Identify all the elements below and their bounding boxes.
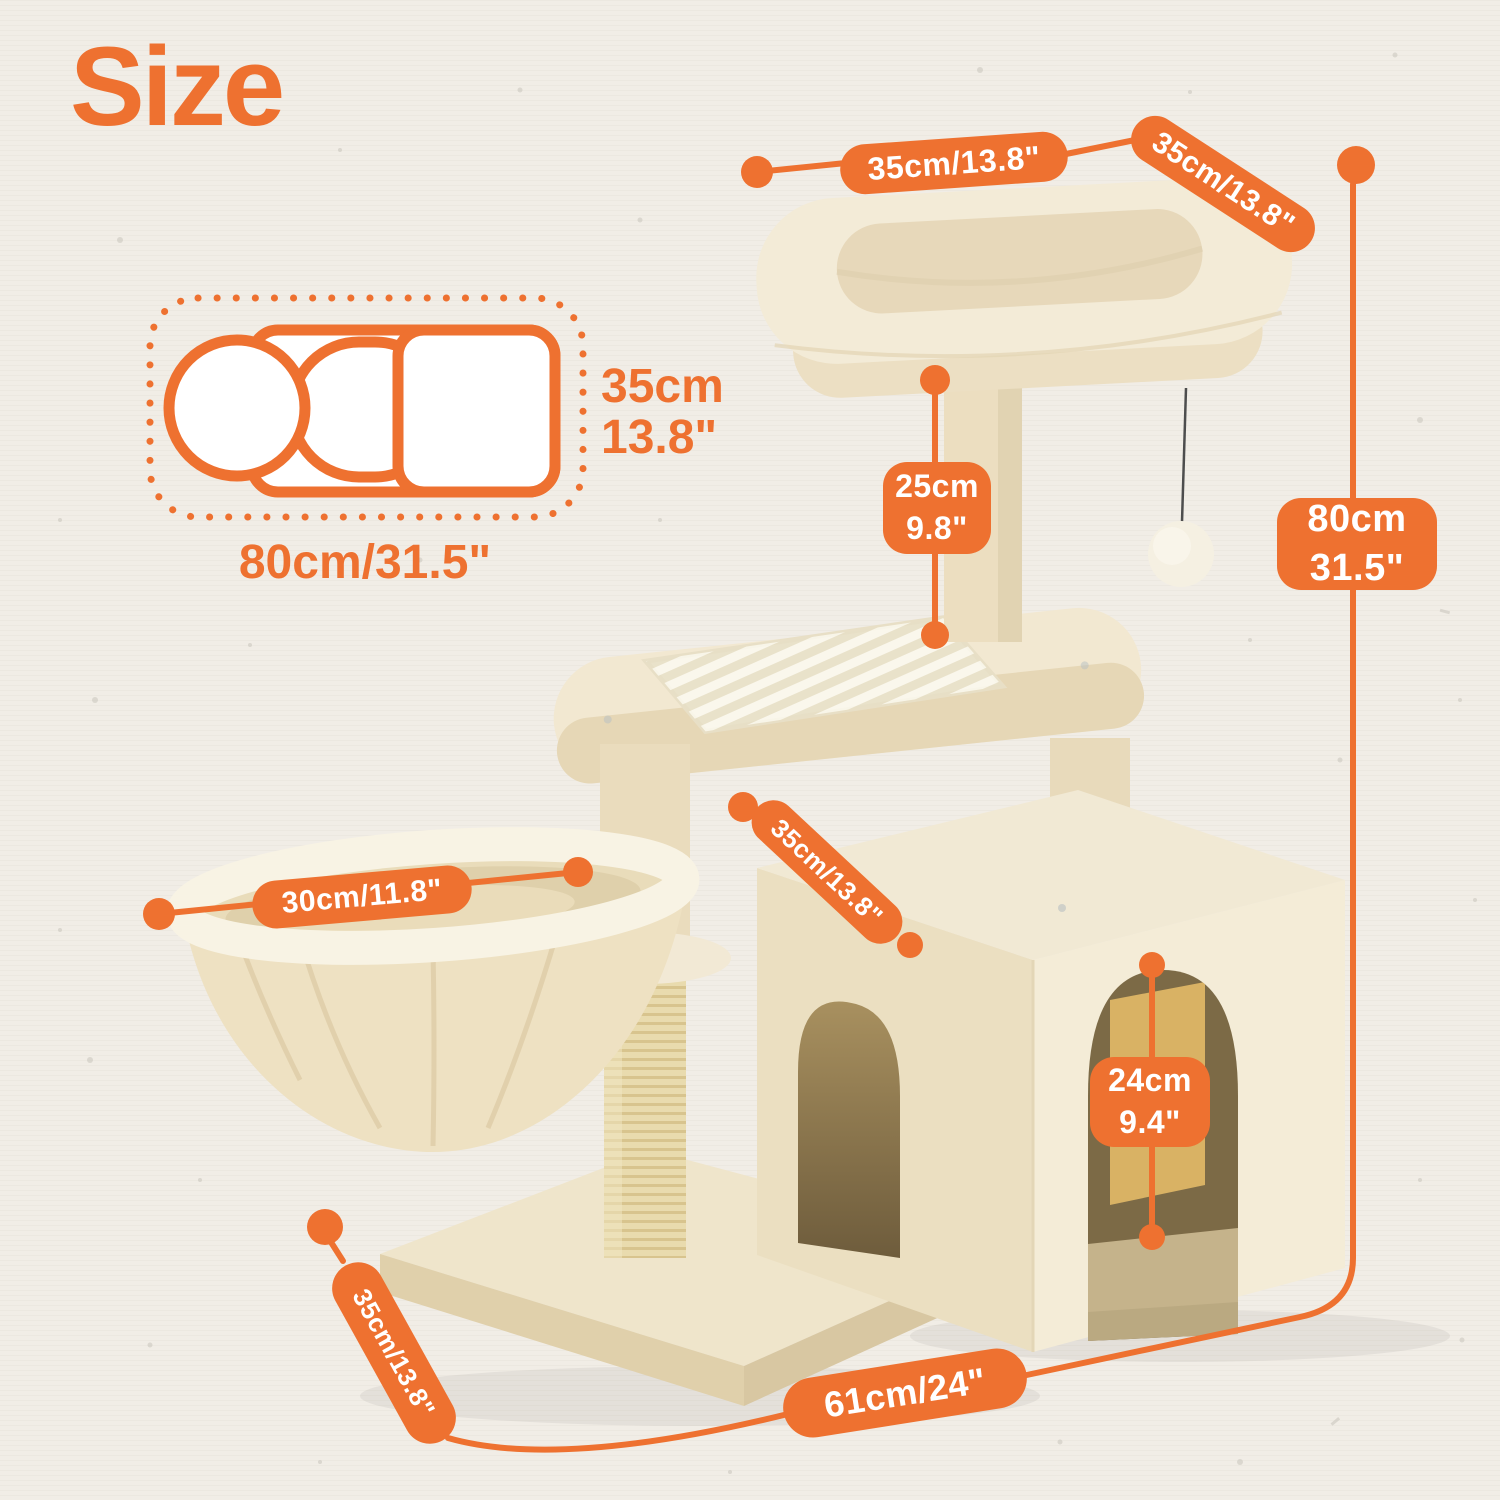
dot-post-top <box>920 365 950 395</box>
dot-base-depth <box>307 1209 343 1245</box>
label-total-height: 80cm 31.5" <box>1277 498 1437 590</box>
label-door-height: 24cm 9.4" <box>1090 1057 1210 1147</box>
dot-total-height-top <box>1337 146 1375 184</box>
label-post-height-in: 9.8" <box>906 508 968 550</box>
dot-door-bottom <box>1139 1224 1165 1250</box>
dot-condo-right <box>897 932 923 958</box>
dot-basket-right <box>563 857 593 887</box>
label-door-height-in: 9.4" <box>1119 1102 1181 1144</box>
total-height-line-lower <box>1022 590 1353 1376</box>
page-title: Size <box>70 22 282 151</box>
label-post-height-cm: 25cm <box>895 466 979 508</box>
folded-footprint-diagram <box>150 298 583 517</box>
label-total-height-in: 31.5" <box>1310 544 1404 593</box>
folded-height-cm: 35cm <box>601 362 724 413</box>
folded-height-label: 35cm 13.8" <box>601 362 724 464</box>
label-door-height-cm: 24cm <box>1108 1060 1192 1102</box>
top-depth-line <box>1066 139 1140 154</box>
dot-basket-left <box>143 898 175 930</box>
base-width-line <box>448 1414 788 1450</box>
label-post-height: 25cm 9.8" <box>883 462 991 554</box>
size-infographic-canvas: Size 35cm 13.8" 80cm/31.5" 35cm/13.8" 35… <box>0 0 1500 1500</box>
folded-height-in: 13.8" <box>601 413 724 464</box>
dot-door-top <box>1139 952 1165 978</box>
dot-top-width <box>741 156 773 188</box>
label-total-height-cm: 80cm <box>1307 495 1406 544</box>
dot-post-bottom <box>921 621 949 649</box>
folded-width-label: 80cm/31.5" <box>180 538 550 589</box>
